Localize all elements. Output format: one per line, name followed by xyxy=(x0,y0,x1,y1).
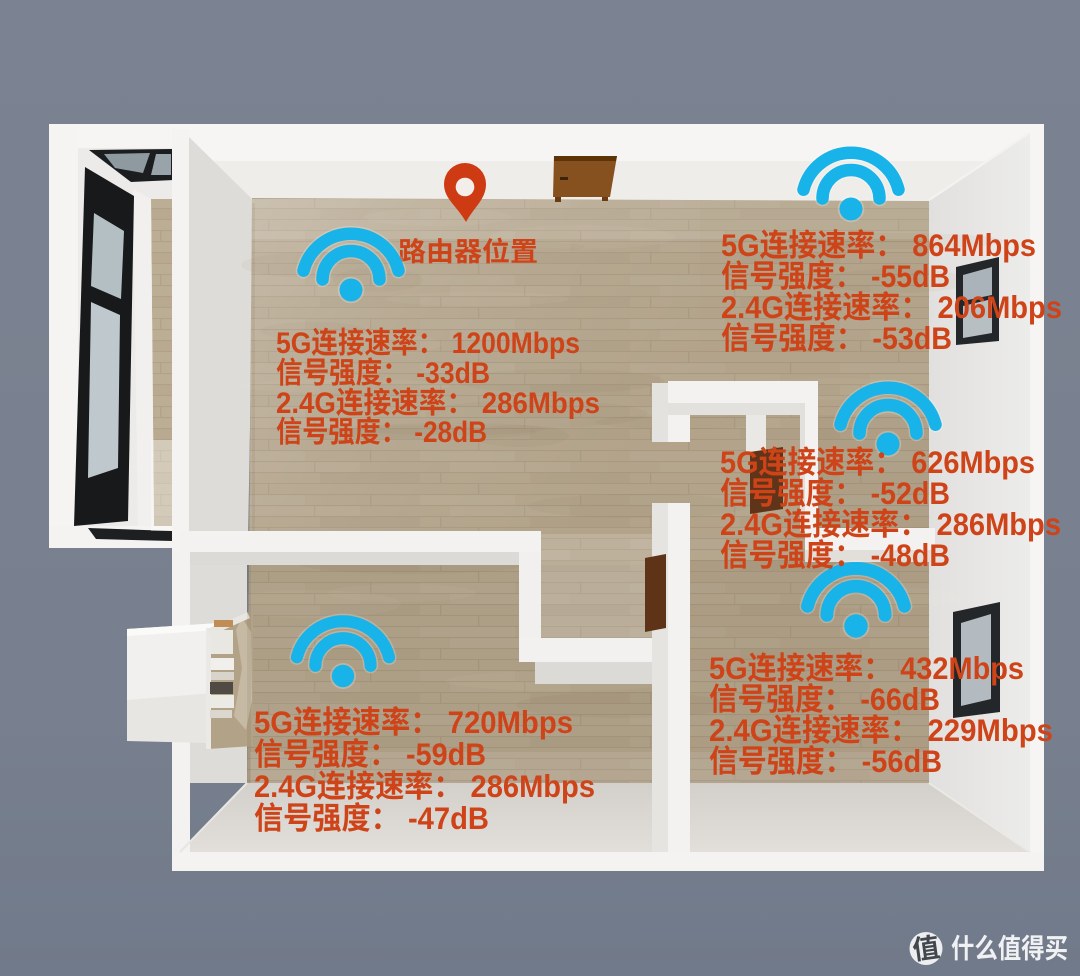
svg-text:什么值得买: 什么值得买 xyxy=(951,926,1068,966)
svg-text:信号强度： -56dB: 信号强度： -56dB xyxy=(709,736,942,782)
svg-text:信号强度： -53dB: 信号强度： -53dB xyxy=(721,313,952,359)
svg-text:值: 值 xyxy=(910,925,942,967)
svg-text:路由器位置: 路由器位置 xyxy=(398,230,538,269)
svg-text:信号强度： -47dB: 信号强度： -47dB xyxy=(254,793,489,839)
svg-text:信号强度： -48dB: 信号强度： -48dB xyxy=(720,530,950,576)
svg-text:信号强度： -28dB: 信号强度： -28dB xyxy=(276,407,487,451)
